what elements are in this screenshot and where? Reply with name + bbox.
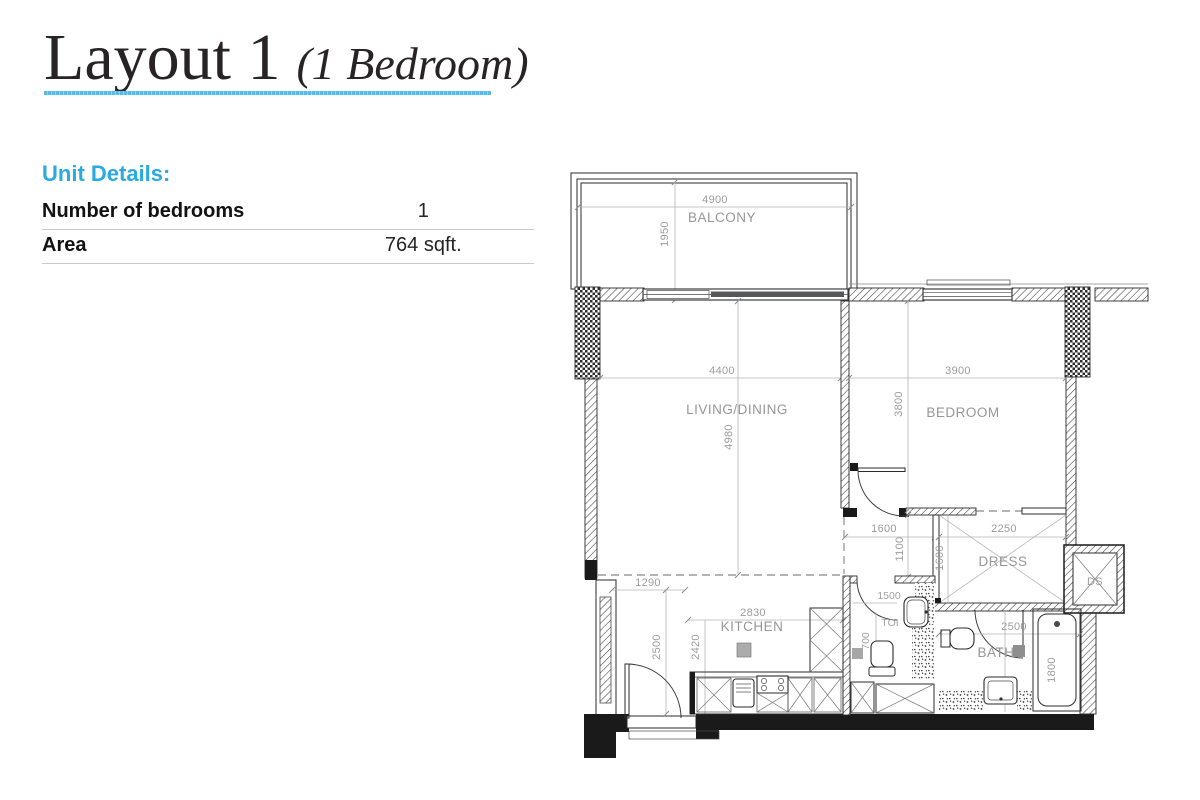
dim-balcony-depth: 1950	[659, 221, 671, 247]
bath-washbasin	[984, 677, 1017, 704]
dress-room: 2250 1600 DRESS	[930, 515, 1070, 611]
utility-cabinets	[851, 682, 934, 713]
room-label-kitchen: KITCHEN	[721, 619, 784, 634]
bedroom: 3900 3800 BEDROOM	[841, 298, 1076, 547]
unit-details-heading: Unit Details:	[42, 161, 534, 187]
entry-niche	[596, 580, 616, 718]
entrance-door	[625, 664, 681, 718]
room-label-balcony: BALCONY	[688, 210, 756, 225]
row-label: Number of bedrooms	[42, 199, 313, 223]
bedroom-door	[858, 468, 905, 516]
title-underline	[44, 91, 491, 95]
dim-living-width: 4400	[709, 365, 735, 377]
row-label: Area	[42, 233, 313, 257]
column-right	[1065, 287, 1090, 377]
floor-drain	[737, 643, 751, 657]
stove	[757, 676, 788, 712]
bath-wc	[941, 628, 974, 649]
dim-hall-width: 1600	[871, 523, 897, 535]
dim-toilet-depth: 700	[860, 632, 872, 650]
table-row: Area 764 sqft.	[42, 230, 534, 264]
dim-hall-depth: 1100	[894, 537, 906, 562]
kitchen-sink	[733, 679, 754, 707]
row-value: 1	[313, 200, 534, 223]
dim-balcony-width: 4900	[702, 194, 728, 206]
dim-entry-depth: 2500	[651, 634, 663, 660]
dim-bedroom-depth: 3800	[893, 391, 905, 417]
dim-dress-depth: 1600	[934, 545, 946, 571]
toilet-room: 1500 700 TOI	[850, 576, 935, 713]
dim-kitchen-width: 2830	[740, 607, 766, 619]
toilet-wc	[869, 641, 895, 676]
entry-threshold	[627, 716, 696, 728]
balcony-sliding-door	[643, 289, 848, 300]
tall-cabinet	[810, 608, 843, 672]
dim-bath-width: 2500	[1001, 621, 1027, 633]
room-label-living: LIVING/DINING	[686, 402, 788, 417]
unit-details: Unit Details: Number of bedrooms 1 Area …	[42, 161, 534, 264]
layout-title: Layout 1	[44, 21, 280, 94]
bath-room: 2500 BATH 1800	[936, 609, 1083, 712]
row-value: 764 sqft.	[313, 234, 534, 257]
dim-bedroom-width: 3900	[945, 365, 971, 377]
hallway: 1600 1100	[842, 512, 938, 580]
room-label-duct-shaft: DS	[1087, 576, 1103, 588]
balcony: 4900 1950 BALCONY	[571, 173, 857, 303]
page-title: Layout 1(1 Bedroom)	[44, 20, 529, 96]
exterior-walls	[575, 280, 1148, 758]
toilet-washbasin	[904, 597, 928, 627]
dim-entry-width: 1290	[635, 577, 661, 589]
switch-square	[852, 648, 863, 659]
room-label-toilet: TOI	[881, 617, 898, 629]
layout-sheet: Layout 1(1 Bedroom) Unit Details: Number…	[0, 0, 1200, 800]
living-room: 4400 4980 LIVING/DINING	[597, 298, 844, 578]
duct-shaft: DS	[1064, 545, 1124, 613]
layout-subtitle: (1 Bedroom)	[296, 38, 528, 89]
dim-tub-length: 1800	[1046, 657, 1058, 683]
bedroom-window	[923, 280, 1012, 300]
bathtub: 1800	[1033, 609, 1081, 711]
room-label-bath: BATH	[977, 645, 1014, 660]
dim-living-depth: 4980	[723, 424, 735, 450]
room-label-bedroom: BEDROOM	[926, 405, 999, 420]
floor-plan: 4900 1950 BALCONY	[565, 160, 1165, 780]
kitchen: 1290 2500 2830 2420 KITCHEN	[598, 575, 850, 718]
table-row: Number of bedrooms 1	[42, 196, 534, 230]
dim-kitchen-depth: 2420	[690, 634, 702, 660]
dim-toilet-width: 1500	[877, 590, 901, 602]
dim-dress-width: 2250	[991, 523, 1017, 535]
room-label-dress: DRESS	[978, 554, 1027, 569]
column-left	[575, 287, 600, 379]
